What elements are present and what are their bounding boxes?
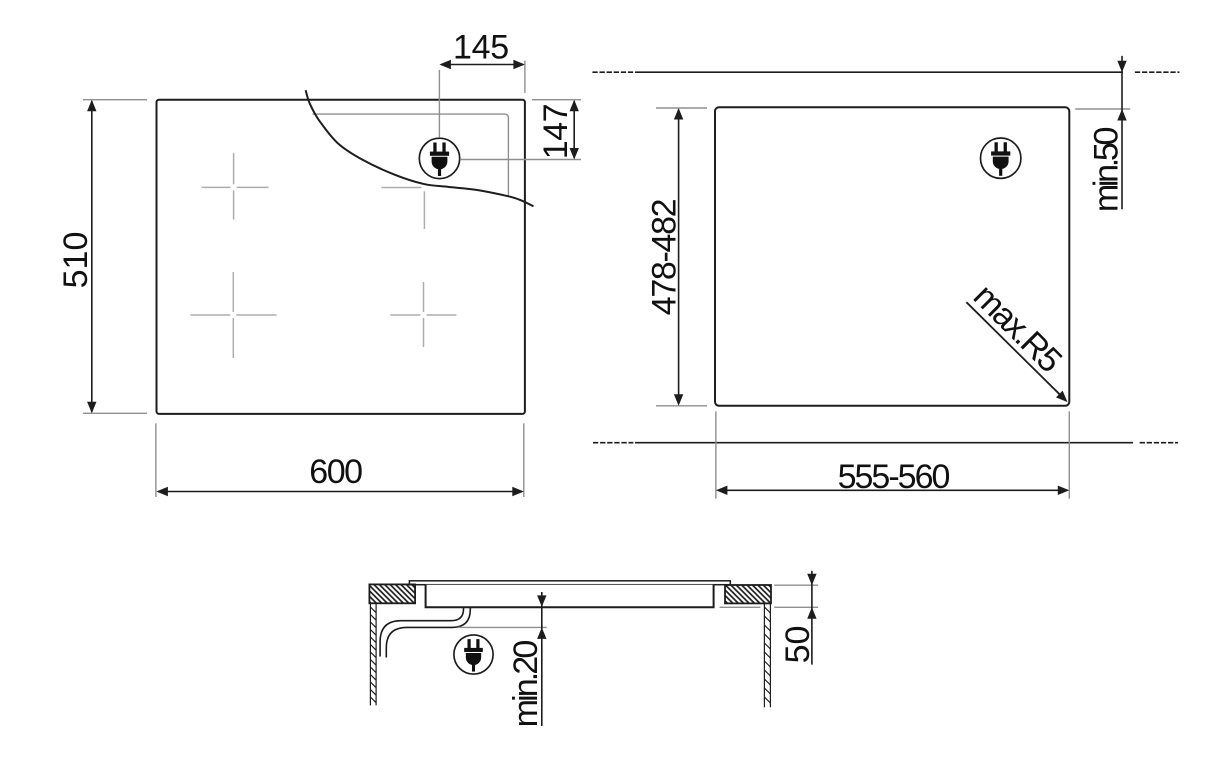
svg-text:600: 600 — [309, 453, 362, 491]
svg-text:min.20: min.20 — [507, 641, 545, 728]
svg-text:147: 147 — [537, 104, 575, 159]
svg-text:555-560: 555-560 — [838, 458, 950, 496]
svg-text:50: 50 — [779, 626, 817, 664]
svg-text:145: 145 — [453, 29, 509, 67]
svg-text:478-482: 478-482 — [646, 199, 684, 315]
svg-text:min.50: min.50 — [1088, 127, 1126, 212]
svg-text:510: 510 — [57, 232, 95, 289]
